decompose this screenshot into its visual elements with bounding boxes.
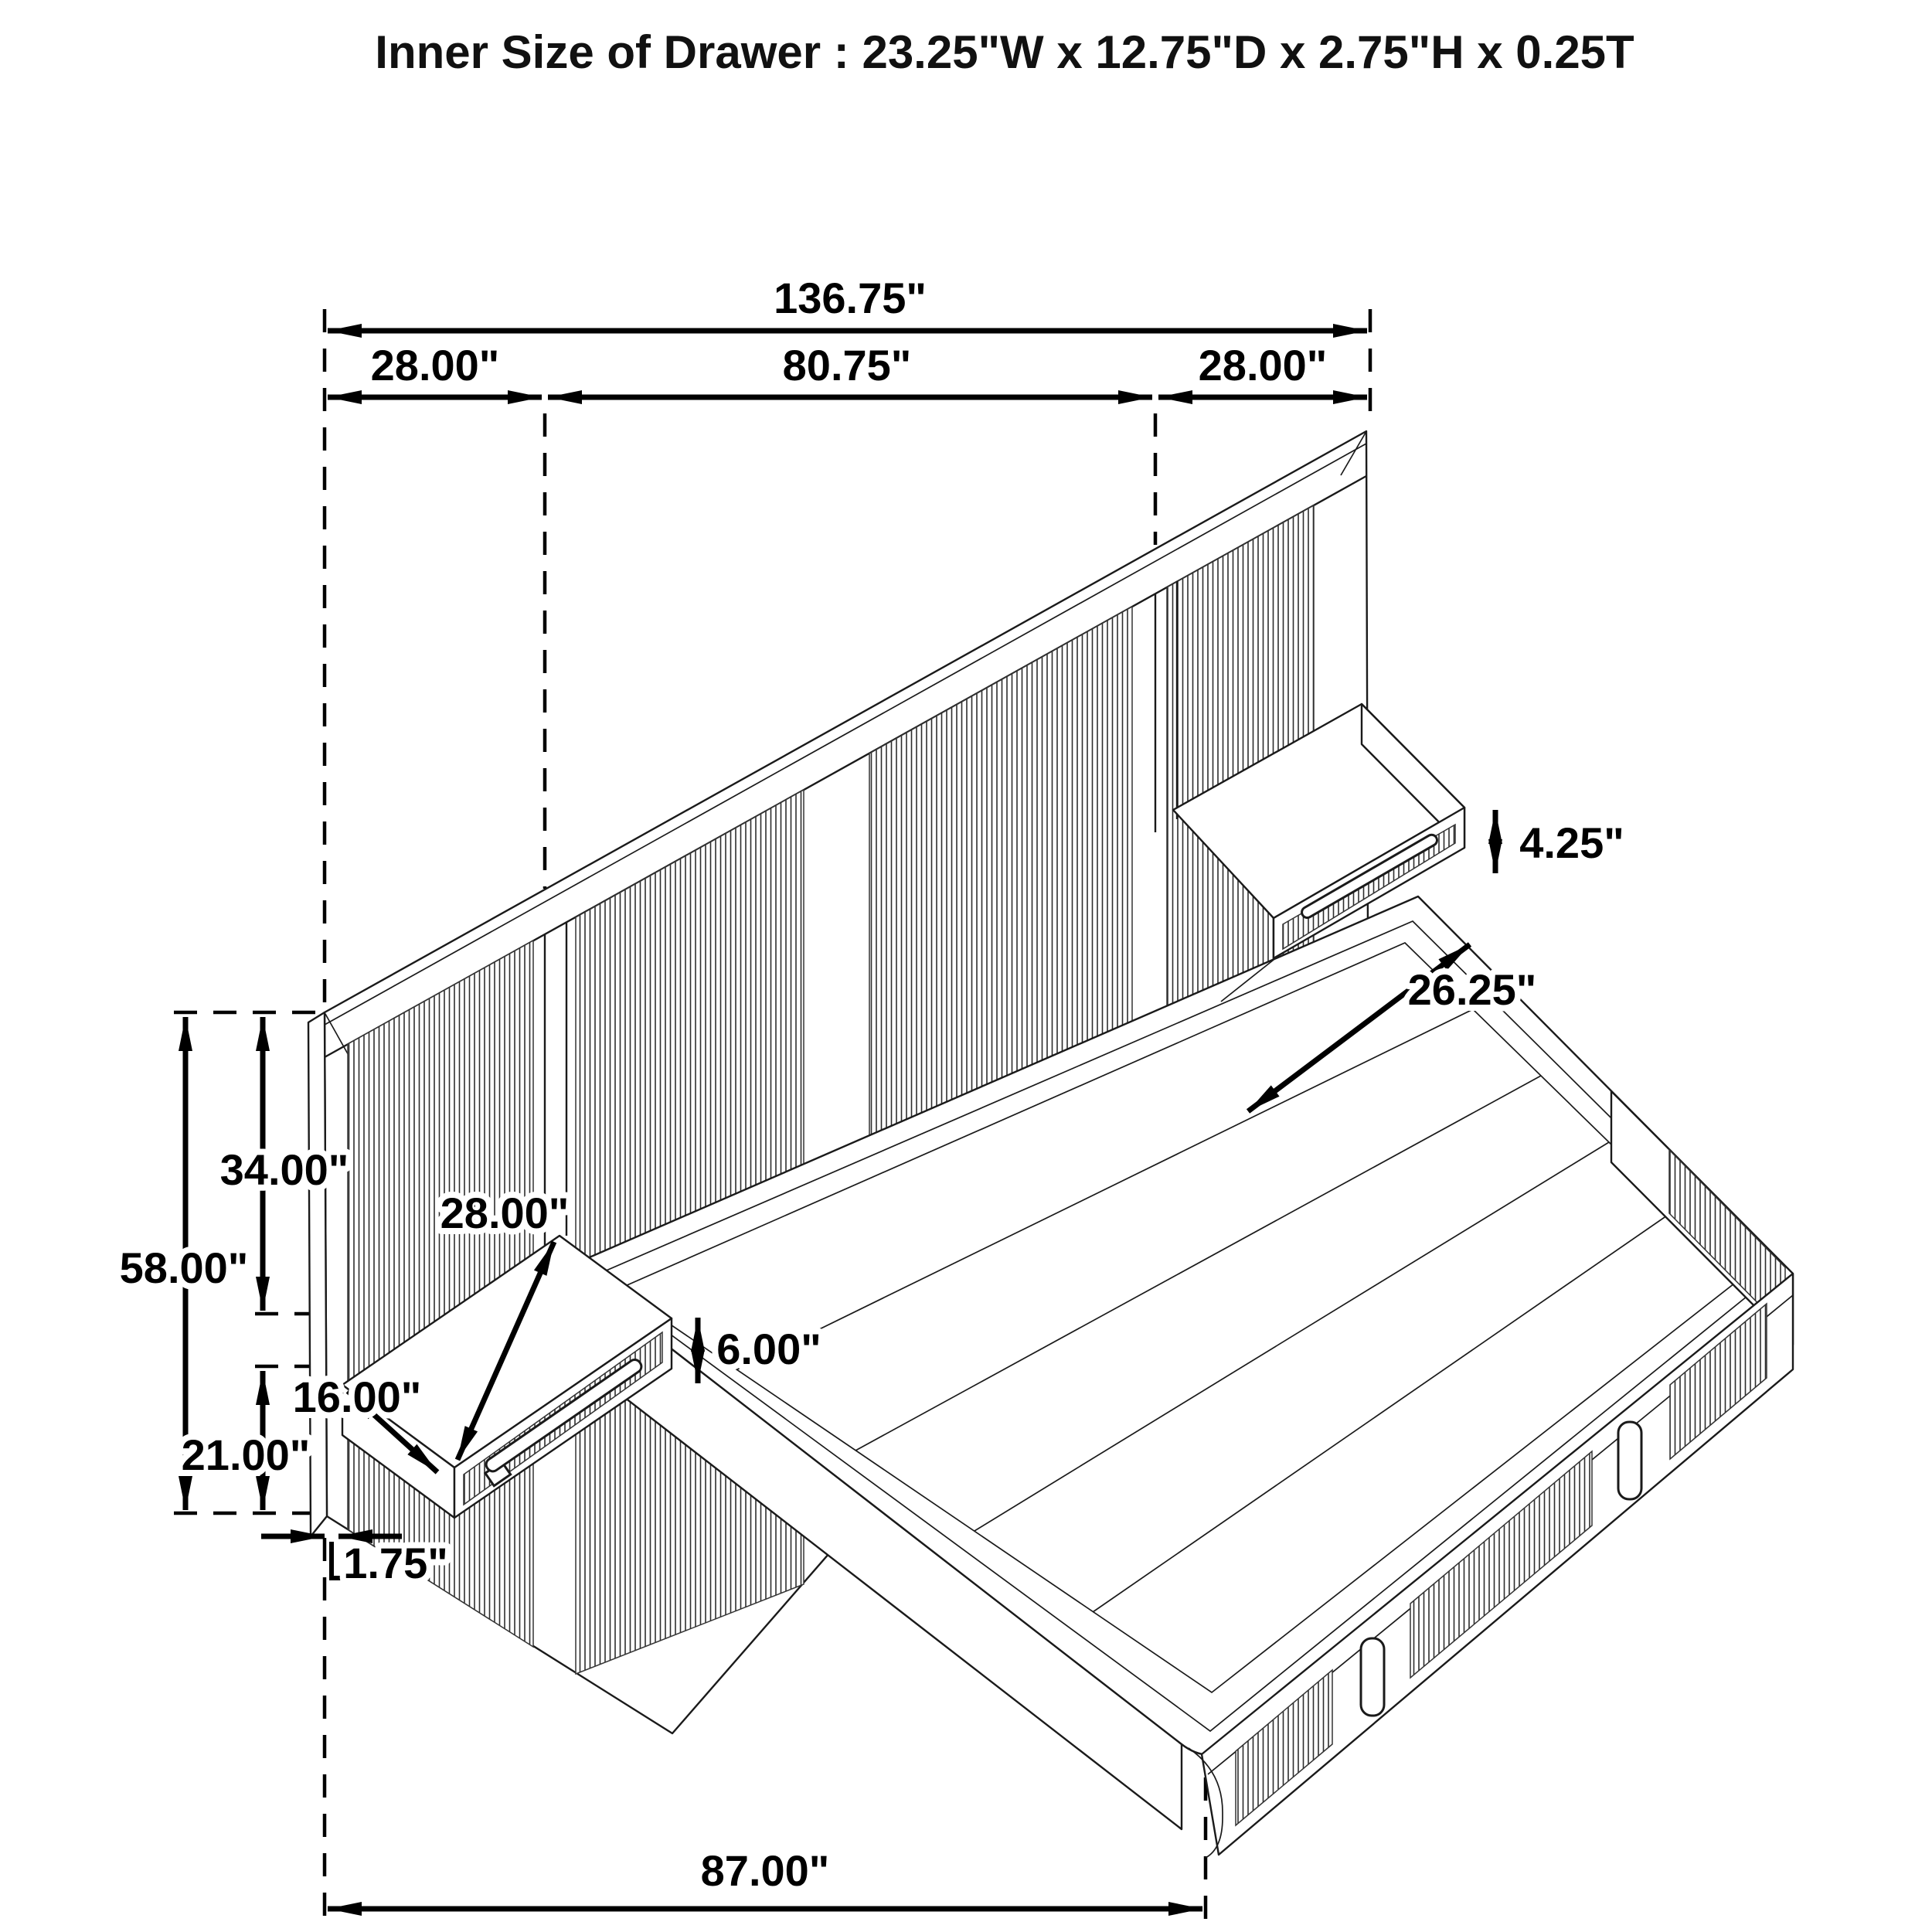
diagram-title: Inner Size of Drawer : 23.25"W x 12.75"D…	[375, 26, 1634, 78]
dim-left-panel-label: 28.00"	[371, 341, 500, 389]
dim-headboard-height-label: 58.00"	[120, 1243, 249, 1292]
headboard-side-edge	[308, 1012, 327, 1536]
dim-right-nightstand-width-label: 26.25"	[1408, 965, 1537, 1014]
dim-lower-height-label: 21.00"	[182, 1430, 311, 1479]
dim-bed-length-label: 87.00"	[701, 1846, 830, 1895]
footboard-handle-left	[1361, 1638, 1384, 1716]
dim-upper-height-label: 34.00"	[220, 1145, 349, 1194]
dim-overall-width-label: 136.75"	[774, 274, 927, 322]
footboard-handle-right	[1618, 1422, 1641, 1499]
dim-thickness-label: 1.75"	[343, 1539, 448, 1587]
bed-dimension-diagram-page: Inner Size of Drawer : 23.25"W x 12.75"D…	[0, 0, 1932, 1932]
dim-center-panel-label: 80.75"	[783, 341, 912, 389]
dim-right-nightstand-height-label: 4.25"	[1519, 818, 1624, 867]
dim-nightstand-height-label: 6.00"	[716, 1325, 821, 1373]
dim-right-panel-label: 28.00"	[1199, 341, 1328, 389]
dim-nightstand-width-label: 28.00"	[440, 1189, 570, 1237]
dim-nightstand-depth-label: 16.00"	[293, 1372, 422, 1421]
bed-dimension-diagram: Inner Size of Drawer : 23.25"W x 12.75"D…	[0, 0, 1932, 1932]
